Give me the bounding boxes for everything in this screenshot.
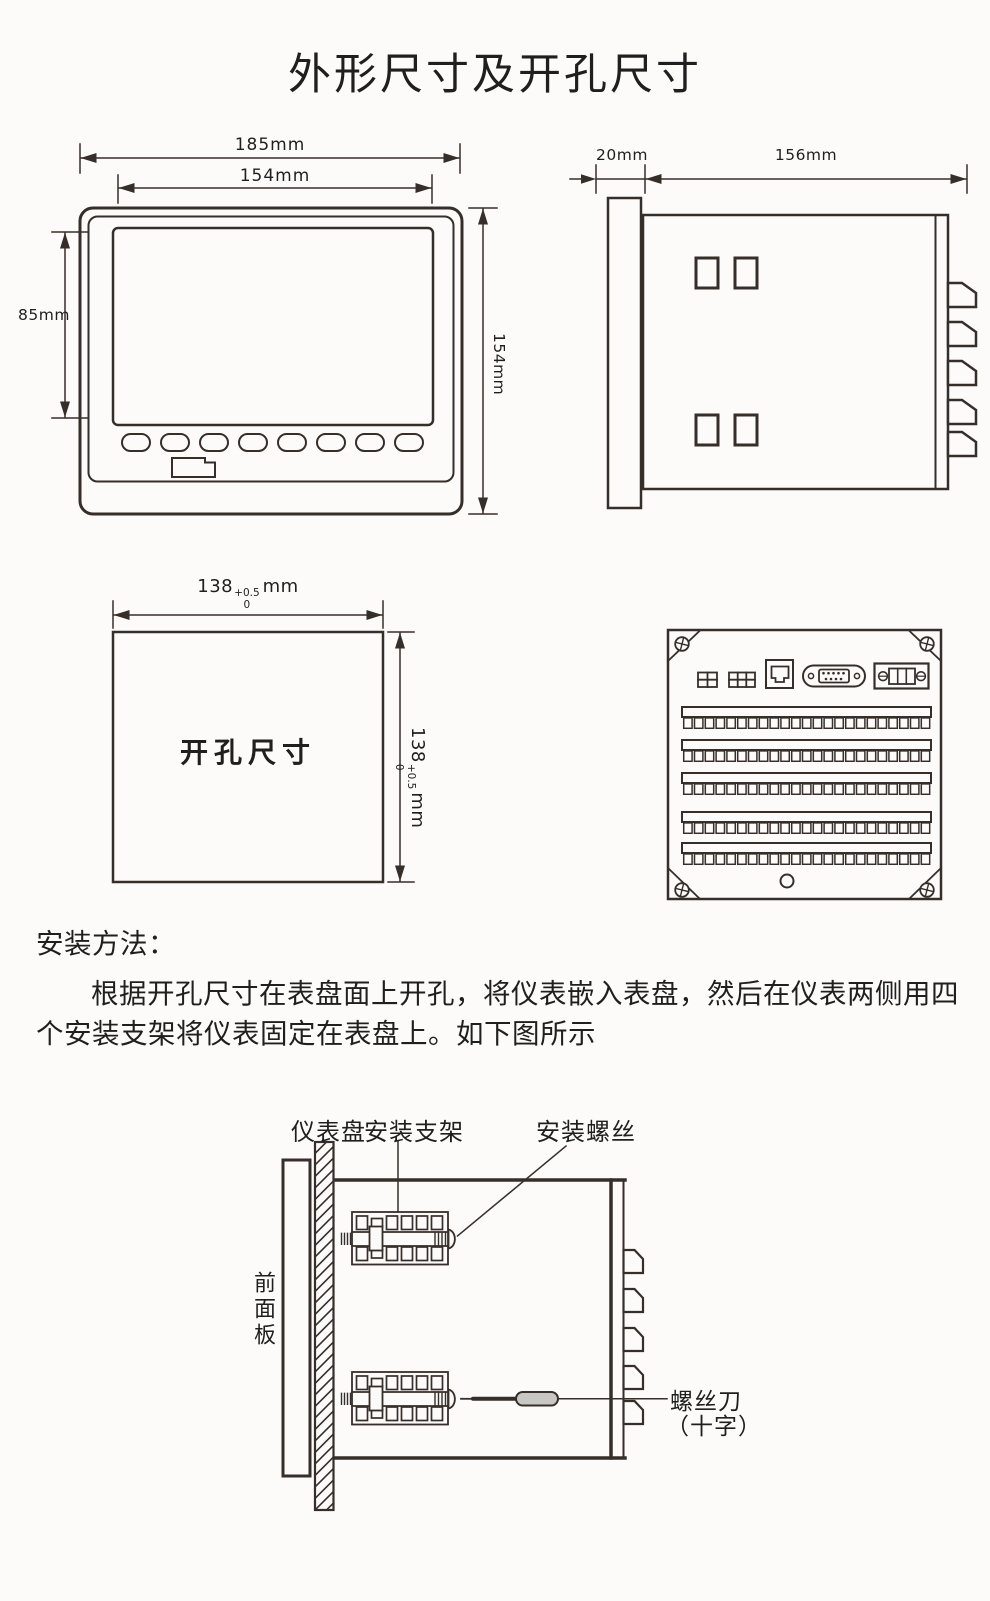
ethernet-port-icon: [766, 660, 793, 688]
dim-label-156mm: 156mm: [645, 146, 967, 164]
front-bezel-outline: [89, 217, 454, 482]
dim-extension-ticks: [52, 232, 88, 418]
label-instrument-panel: 仪表盘: [291, 1112, 366, 1147]
db9-serial-port-icon: [803, 666, 865, 687]
front-case-outline: [80, 208, 462, 514]
install-diagram: [283, 1141, 667, 1510]
manual-page: 外形尺寸及开孔尺寸 185mm 154mm 85mm 154mm 20mm 15…: [0, 0, 990, 1601]
page-title: 外形尺寸及开孔尺寸: [0, 40, 990, 102]
label-mounting-bracket: 安装支架: [364, 1112, 464, 1147]
tolerance-lower: 0: [393, 764, 405, 790]
instructions-line-2: 个安装支架将仪表固定在表盘上。如下图所示: [36, 1011, 596, 1051]
dim-unit: mm: [263, 576, 299, 597]
rear-hole: [781, 875, 794, 888]
mounting-bracket-lower: [342, 1372, 455, 1425]
side-body: [643, 215, 948, 489]
dim-value: 138: [197, 576, 233, 597]
dim-label-154mm-right: 154mm: [490, 333, 508, 395]
mounting-bracket-upper: [342, 1212, 455, 1265]
dim-label-20mm: 20mm: [596, 146, 645, 164]
usb-port: [172, 458, 215, 477]
side-bezel: [608, 198, 641, 508]
display-screen: [113, 228, 433, 425]
label-mounting-screw: 安装螺丝: [536, 1112, 636, 1147]
front-panel-buttons: [122, 434, 423, 451]
dim-label-154mm-top: 154mm: [118, 166, 432, 186]
technical-drawing: [0, 0, 990, 1601]
tolerance-upper: +0.5: [405, 764, 417, 790]
label-screwdriver-type: （十字）: [666, 1407, 762, 1441]
side-vent-holes: [696, 258, 757, 445]
front-view: [52, 144, 497, 514]
connector-3pin: [729, 673, 755, 688]
dim-label-138mm-top: 138+0.50mm: [113, 576, 383, 611]
dim-label-138mm-right: 138+0.50mm: [393, 727, 428, 828]
dim-label-85mm: 85mm: [18, 306, 70, 324]
dim-value: 138: [407, 727, 428, 763]
side-view: [570, 165, 976, 508]
terminal-strips: [682, 707, 931, 865]
front-panel-section: [283, 1160, 310, 1476]
cutout-label: 开孔尺寸: [113, 731, 383, 771]
label-front-panel: 前面板: [247, 1271, 279, 1349]
tolerance-stack: +0.50: [393, 764, 417, 790]
install-terminal-teeth: [624, 1250, 644, 1424]
power-terminal: [875, 664, 929, 689]
dim-arrow: [581, 174, 596, 184]
side-terminal-teeth: [948, 283, 976, 456]
instructions-heading: 安装方法：: [36, 921, 176, 961]
rear-view: [668, 630, 941, 899]
dim-unit: mm: [407, 792, 428, 828]
tolerance-lower: 0: [234, 599, 260, 611]
dim-label-185mm: 185mm: [80, 135, 460, 155]
instrument-panel-hatched: [315, 1142, 334, 1510]
tolerance-upper: +0.5: [234, 587, 260, 599]
leader-screw: [458, 1146, 567, 1236]
screwdriver: [461, 1392, 558, 1406]
instructions-line-1: 根据开孔尺寸在表盘面上开孔，将仪表嵌入表盘，然后在仪表两侧用四: [91, 971, 959, 1011]
tolerance-stack: +0.50: [234, 587, 260, 611]
connector-2pin: [698, 673, 717, 688]
